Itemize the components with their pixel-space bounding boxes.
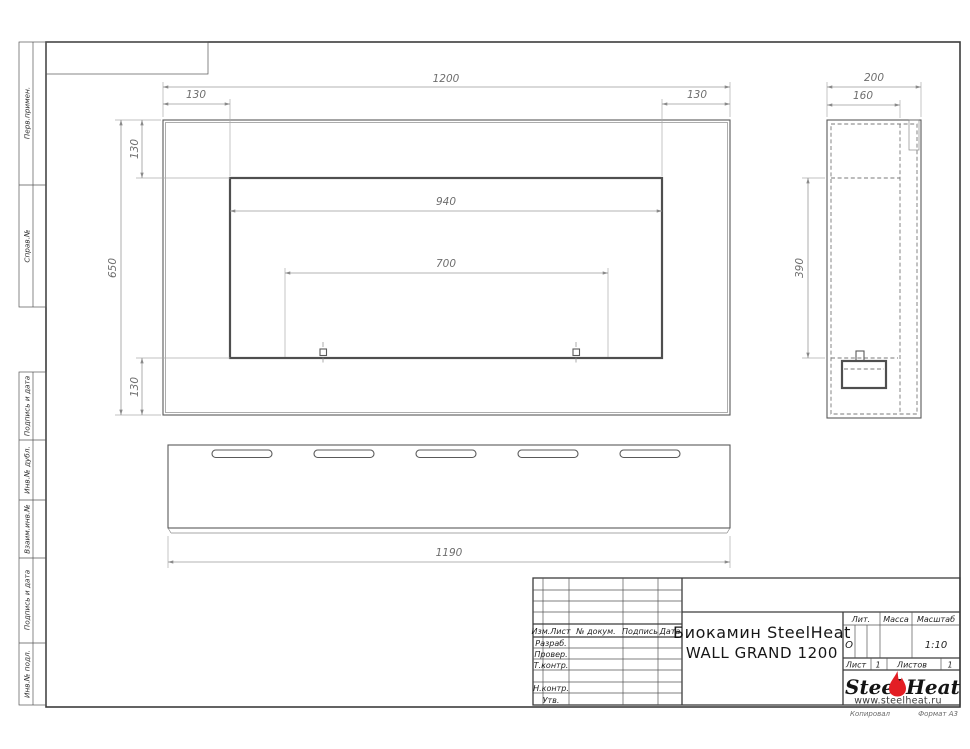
scale-value: 1:10 bbox=[925, 640, 947, 651]
row-label-nkontr: Н.контр. bbox=[533, 684, 569, 693]
row-label-prover: Провер. bbox=[534, 650, 567, 659]
dim-side-depth: 200 bbox=[864, 72, 884, 84]
dim-front-width: 1200 bbox=[433, 73, 460, 85]
margin-label-perv-primen: Перв.примен. bbox=[23, 87, 32, 139]
dim-front-margin-right: 130 bbox=[687, 89, 707, 101]
side-mount-bracket bbox=[909, 120, 919, 150]
dim-front-opening-width: 940 bbox=[436, 196, 456, 208]
drawing-sheet: Перв.примен. Справ.№ Подпись и дата Инв.… bbox=[0, 0, 970, 749]
front-view-dimensions: 1200 130 130 650 130 130 940 700 bbox=[107, 73, 730, 415]
margin-label-vzaim-inv: Взаим.инв.№ bbox=[23, 504, 32, 554]
sheet-label: Лист bbox=[845, 661, 867, 670]
top-left-reference-box bbox=[46, 42, 208, 74]
drawing-frame-border bbox=[46, 42, 960, 707]
rev-col-sign: Подпись bbox=[622, 627, 658, 636]
margin-label-inv-podl: Инв.№ подл. bbox=[23, 650, 32, 698]
vent-slot-1 bbox=[212, 450, 272, 458]
dim-side-opening-height: 390 bbox=[794, 258, 806, 278]
vent-slot-5 bbox=[620, 450, 680, 458]
footer-copied-label: Копировал bbox=[850, 710, 891, 718]
document-title-line2: WALL GRAND 1200 bbox=[686, 644, 838, 662]
drawing-canvas: Перв.примен. Справ.№ Подпись и дата Инв.… bbox=[0, 0, 970, 749]
side-view bbox=[827, 120, 921, 418]
dim-side-inner-depth: 160 bbox=[853, 90, 873, 102]
document-title-line1: Биокамин SteelHeat bbox=[673, 623, 851, 642]
row-label-razrab: Разраб. bbox=[535, 639, 566, 648]
rev-col-doc: № докум. bbox=[575, 627, 615, 636]
row-label-utv: Утв. bbox=[543, 696, 560, 705]
row-label-tkontr: Т.контр. bbox=[534, 661, 569, 670]
margin-stamp-column: Перв.примен. Справ.№ Подпись и дата Инв.… bbox=[19, 42, 46, 705]
dim-front-height: 650 bbox=[107, 258, 119, 278]
lit-label: Лит. bbox=[851, 615, 870, 624]
dim-front-bottom-margin: 130 bbox=[129, 377, 141, 397]
bottom-view bbox=[168, 445, 730, 533]
scale-label: Масштаб bbox=[917, 615, 955, 624]
title-block: Изм.Лист № докум. Подпись Дата Разраб. П… bbox=[531, 578, 960, 718]
sheet-frame bbox=[46, 42, 960, 707]
sheets-total: 1 bbox=[947, 661, 952, 670]
vent-slot-3 bbox=[416, 450, 476, 458]
side-burner-box bbox=[831, 351, 898, 388]
sheet-number: 1 bbox=[875, 661, 880, 670]
dim-bottom-width: 1190 bbox=[436, 547, 463, 559]
mass-label: Масса bbox=[883, 615, 909, 624]
dim-front-burner-span: 700 bbox=[436, 258, 456, 270]
side-view-dimensions: 200 160 390 bbox=[794, 72, 921, 358]
vent-slot-2 bbox=[314, 450, 374, 458]
footer-format-label: Формат А3 bbox=[918, 710, 958, 718]
margin-label-sprav-no: Справ.№ bbox=[23, 229, 32, 263]
burner-mark-right bbox=[573, 342, 580, 363]
sheets-label: Листов bbox=[896, 661, 927, 670]
rev-col-izm-list: Изм.Лист bbox=[531, 627, 570, 636]
dim-front-margin-left: 130 bbox=[186, 89, 206, 101]
vent-slot-4 bbox=[518, 450, 578, 458]
lit-value: О bbox=[845, 640, 853, 651]
margin-label-podpis-data-1: Подпись и дата bbox=[23, 376, 32, 436]
margin-label-inv-dubl: Инв.№ дубл. bbox=[23, 446, 32, 494]
steelheat-logo: Steel Heat www.steelheat.ru bbox=[845, 671, 961, 707]
bottom-view-dimensions: 1190 bbox=[168, 536, 730, 568]
logo-url: www.steelheat.ru bbox=[854, 696, 942, 707]
margin-label-podpis-data-2: Подпись и дата bbox=[23, 570, 32, 630]
burner-mark-left bbox=[320, 342, 327, 363]
dim-front-top-margin: 130 bbox=[129, 139, 141, 159]
